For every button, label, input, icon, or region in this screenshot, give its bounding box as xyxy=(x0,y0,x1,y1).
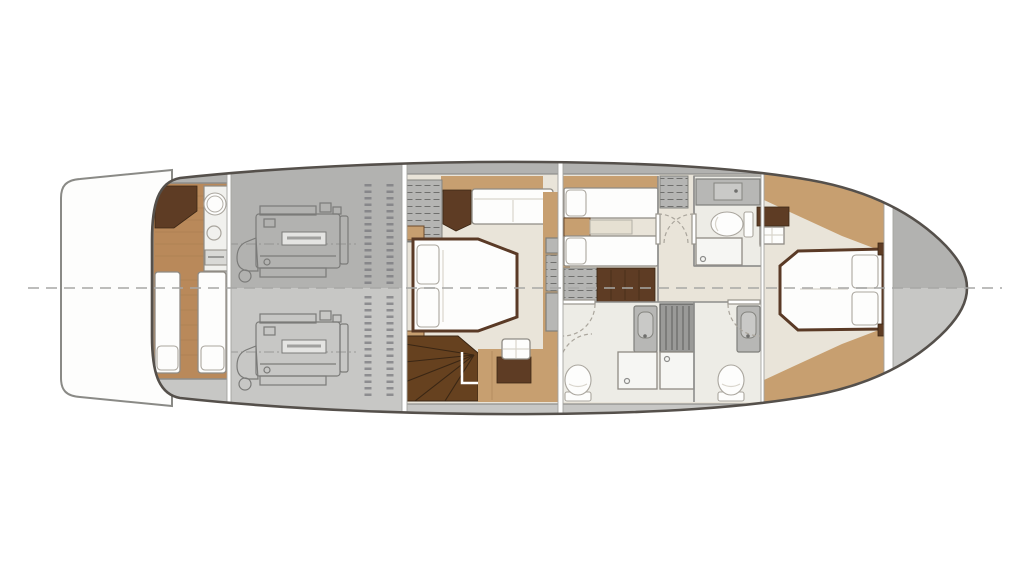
vip-pillow-1 xyxy=(852,255,878,288)
master-sofa xyxy=(472,189,553,224)
deck-plan-svg xyxy=(0,0,1024,576)
master-double-bed xyxy=(413,239,517,331)
bow-bulkhead xyxy=(884,162,893,414)
twin-cabin xyxy=(562,176,658,302)
twin-locker xyxy=(564,268,597,302)
forward-head xyxy=(694,176,762,266)
stbd-bath-door-leaf xyxy=(728,300,760,304)
crew-pillow-starboard xyxy=(201,346,224,370)
twin-nightstand-top xyxy=(590,220,632,234)
stbd-bath-toilet xyxy=(718,365,744,401)
hall-top-locker xyxy=(660,176,688,208)
twin-wardrobe xyxy=(597,268,655,302)
vip-cabin xyxy=(757,168,887,412)
master-side-shelf-b xyxy=(546,293,559,331)
forward-head-door-leaf xyxy=(692,214,696,244)
twin-headliner-band xyxy=(562,176,658,188)
master-floor-cabinet xyxy=(497,357,531,383)
twin-nightstand xyxy=(564,218,590,236)
master-ottoman xyxy=(502,339,530,359)
vip-pillow-2 xyxy=(852,292,878,325)
master-pillow-2 xyxy=(417,288,439,327)
master-pillow-1 xyxy=(417,245,439,284)
master-side-shelf-a xyxy=(546,238,559,253)
hall-closet xyxy=(660,304,694,352)
twin-bed-starboard xyxy=(564,236,658,266)
master-corner-cabinet xyxy=(443,190,471,231)
port-bath-toilet xyxy=(565,365,591,401)
forward-head-toilet xyxy=(711,212,753,237)
twin-door-leaf xyxy=(656,214,660,244)
deck-plan-page xyxy=(0,0,1024,576)
crew-cabin xyxy=(153,183,229,379)
port-bath-door-leaf xyxy=(563,300,595,304)
master-side-locker xyxy=(546,255,559,291)
twin-bed-port xyxy=(564,188,658,218)
crew-pillow-port xyxy=(157,346,178,370)
port-bath-shower xyxy=(618,352,657,389)
vip-double-bed xyxy=(780,249,883,330)
